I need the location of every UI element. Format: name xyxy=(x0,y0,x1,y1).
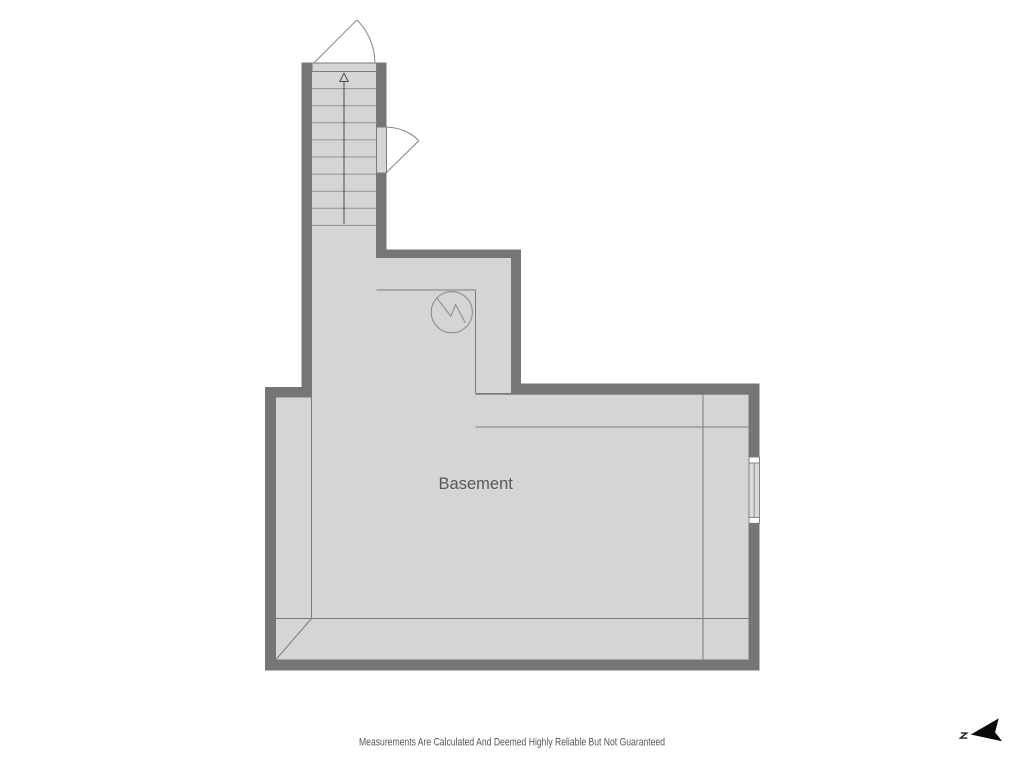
svg-text:Basement: Basement xyxy=(439,475,514,493)
svg-text:Measurements Are Calculated An: Measurements Are Calculated And Deemed H… xyxy=(359,737,665,749)
